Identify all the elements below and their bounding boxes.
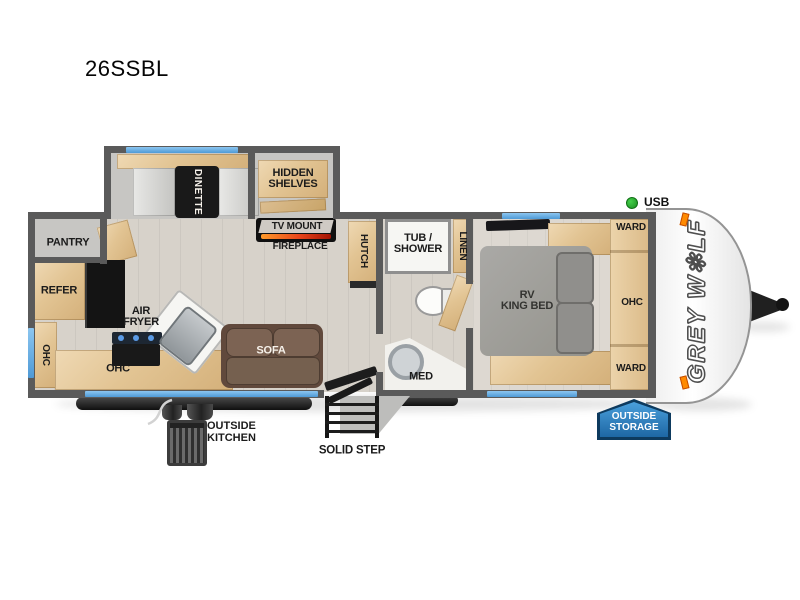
nightstand-bottom	[490, 351, 612, 385]
usb-indicator-icon	[626, 197, 638, 209]
bath-wall-left	[376, 219, 383, 334]
floorplan-diagram: 26SSBL GREY W✻LF PANTRY REFER OHC OHC AI…	[0, 0, 800, 600]
ward-top-label: WARD	[616, 223, 646, 233]
hutch-base	[350, 281, 376, 288]
slideout-divider-wall	[248, 151, 255, 219]
sofa-label: SOFA	[256, 346, 285, 357]
tub-shower-label: TUB / SHOWER	[394, 233, 442, 255]
step-rung	[325, 421, 379, 424]
burner-icon	[118, 335, 124, 341]
usb-label: USB	[644, 195, 669, 209]
burner-icon	[148, 335, 154, 341]
window-bedroom-bottom	[487, 391, 577, 397]
fireplace-flame-icon	[261, 234, 331, 239]
step-rung	[325, 430, 379, 433]
bath-wall-left	[376, 372, 383, 396]
underbody-tank	[187, 404, 213, 420]
solid-step-label: SOLID STEP	[319, 446, 385, 457]
wardrobe-divider	[610, 250, 650, 253]
ohc-bed-label: OHC	[621, 298, 643, 308]
bed-label: RV KING BED	[501, 290, 553, 312]
window-rear	[28, 328, 34, 378]
wall	[334, 212, 654, 219]
window-slideout	[126, 147, 238, 153]
med-label: MED	[409, 372, 433, 383]
outside-kitchen-label: OUTSIDE KITCHEN	[207, 421, 256, 444]
pantry-wall	[33, 257, 107, 263]
brand-logo: GREY W✻LF	[683, 219, 712, 383]
ohc-rear-label: OHC	[40, 344, 50, 366]
solid-step-icon	[325, 396, 379, 438]
dinette-bench-left	[133, 168, 175, 216]
wall	[28, 212, 110, 219]
step-rung	[325, 412, 379, 415]
dinette-label: DINETTE	[192, 169, 202, 215]
window-bedroom-top	[502, 213, 560, 219]
ward-bottom-label: WARD	[616, 364, 646, 374]
hidden-shelves-label: HIDDEN SHELVES	[268, 168, 317, 190]
tv-mount-label: TV MOUNT	[272, 222, 323, 232]
cooktop	[112, 332, 162, 344]
refrigerator	[85, 260, 125, 328]
grill-lid	[170, 423, 204, 428]
pillow	[556, 252, 594, 304]
slideout-wall	[104, 146, 111, 219]
fireplace-label: FIREPLACE	[273, 242, 328, 252]
refer-label: REFER	[41, 286, 77, 297]
outside-storage-label: OUTSIDE STORAGE	[597, 411, 671, 433]
sofa-seat-cushion	[226, 357, 320, 385]
outside-kitchen-grill-icon	[167, 420, 207, 466]
pantry-label: PANTRY	[47, 238, 90, 249]
burner-icon	[133, 335, 139, 341]
bath-wall-right	[466, 328, 473, 396]
hitch-ball	[776, 298, 789, 311]
ohc-kitchen-label: OHC	[106, 364, 130, 375]
hutch-label: HUTCH	[358, 234, 368, 268]
step-rung	[325, 403, 379, 406]
air-fryer-label: AIR FRYER	[123, 306, 159, 328]
wardrobe-divider	[610, 344, 650, 347]
pillow	[556, 302, 594, 354]
wall-front	[648, 212, 656, 398]
window-kitchen-bottom	[85, 391, 318, 397]
linen-label: LINEN	[457, 231, 467, 260]
slideout-wall	[333, 146, 340, 219]
model-number: 26SSBL	[85, 57, 169, 81]
